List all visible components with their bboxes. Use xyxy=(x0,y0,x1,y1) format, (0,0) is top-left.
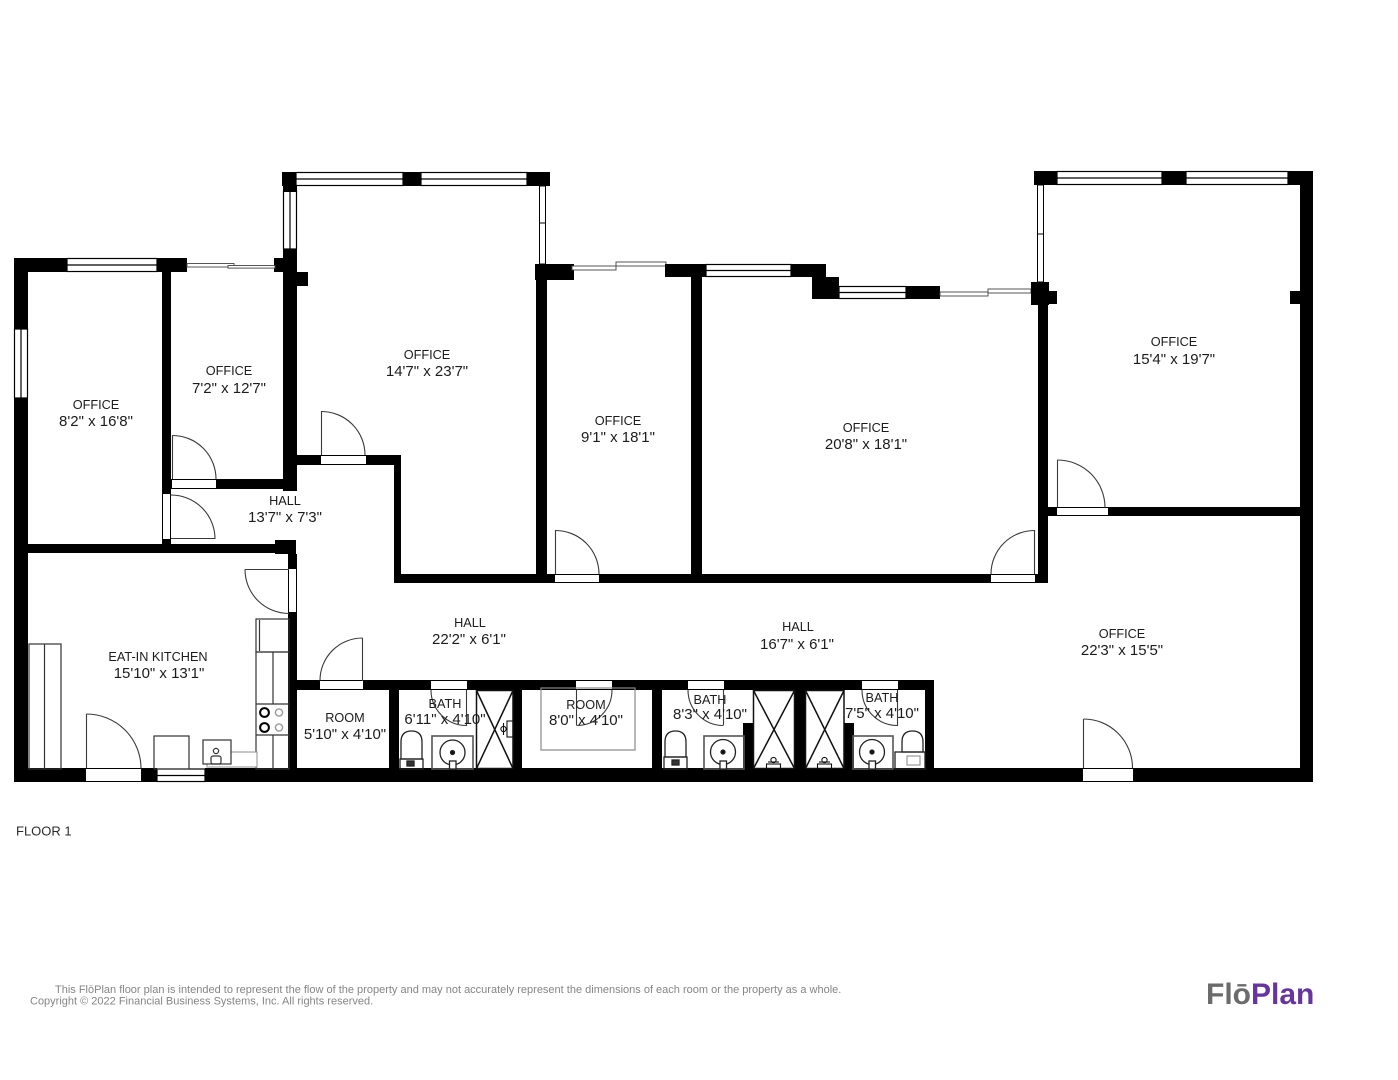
svg-text:FLOOR 1: FLOOR 1 xyxy=(16,824,72,839)
svg-text:8'3" x 4'10": 8'3" x 4'10" xyxy=(673,706,747,723)
svg-text:15'4" x 19'7": 15'4" x 19'7" xyxy=(1133,351,1215,368)
svg-text:7'5" x 4'10": 7'5" x 4'10" xyxy=(845,705,919,722)
svg-text:6'11" x 4'10": 6'11" x 4'10" xyxy=(404,711,485,728)
svg-text:HALL: HALL xyxy=(269,494,301,508)
svg-text:BATH: BATH xyxy=(866,691,899,705)
svg-text:OFFICE: OFFICE xyxy=(73,398,120,412)
svg-text:15'10" x 13'1": 15'10" x 13'1" xyxy=(114,665,205,682)
svg-text:8'0" x 4'10": 8'0" x 4'10" xyxy=(549,712,623,729)
svg-text:7'2" x 12'7": 7'2" x 12'7" xyxy=(192,380,266,397)
svg-text:EAT-IN KITCHEN: EAT-IN KITCHEN xyxy=(108,650,207,664)
svg-text:5'10" x 4'10": 5'10" x 4'10" xyxy=(304,726,386,743)
svg-text:22'2" x 6'1": 22'2" x 6'1" xyxy=(432,631,506,648)
svg-text:13'7" x 7'3": 13'7" x 7'3" xyxy=(248,509,322,526)
svg-text:BATH: BATH xyxy=(429,697,462,711)
svg-text:22'3" x 15'5": 22'3" x 15'5" xyxy=(1081,642,1163,659)
svg-text:14'7" x 23'7": 14'7" x 23'7" xyxy=(386,363,468,380)
svg-text:OFFICE: OFFICE xyxy=(843,421,890,435)
svg-text:ROOM: ROOM xyxy=(566,698,605,712)
svg-text:This FlōPlan floor plan is int: This FlōPlan floor plan is intended to r… xyxy=(55,984,841,996)
svg-text:FlōPlan: FlōPlan xyxy=(1206,978,1314,1011)
svg-text:8'2" x 16'8": 8'2" x 16'8" xyxy=(59,413,133,430)
svg-text:ROOM: ROOM xyxy=(325,711,364,725)
svg-text:16'7" x 6'1": 16'7" x 6'1" xyxy=(760,636,834,653)
svg-text:OFFICE: OFFICE xyxy=(1099,627,1146,641)
svg-text:9'1" x 18'1": 9'1" x 18'1" xyxy=(581,429,655,446)
svg-text:OFFICE: OFFICE xyxy=(404,348,451,362)
svg-text:HALL: HALL xyxy=(782,620,814,634)
svg-text:20'8" x 18'1": 20'8" x 18'1" xyxy=(825,436,907,453)
svg-text:OFFICE: OFFICE xyxy=(1151,335,1198,349)
svg-text:OFFICE: OFFICE xyxy=(595,414,642,428)
svg-text:Copyright © 2022 Financial Bus: Copyright © 2022 Financial Business Syst… xyxy=(30,996,373,1008)
svg-text:HALL: HALL xyxy=(454,616,486,630)
svg-text:BATH: BATH xyxy=(694,693,727,707)
svg-text:OFFICE: OFFICE xyxy=(206,364,253,378)
